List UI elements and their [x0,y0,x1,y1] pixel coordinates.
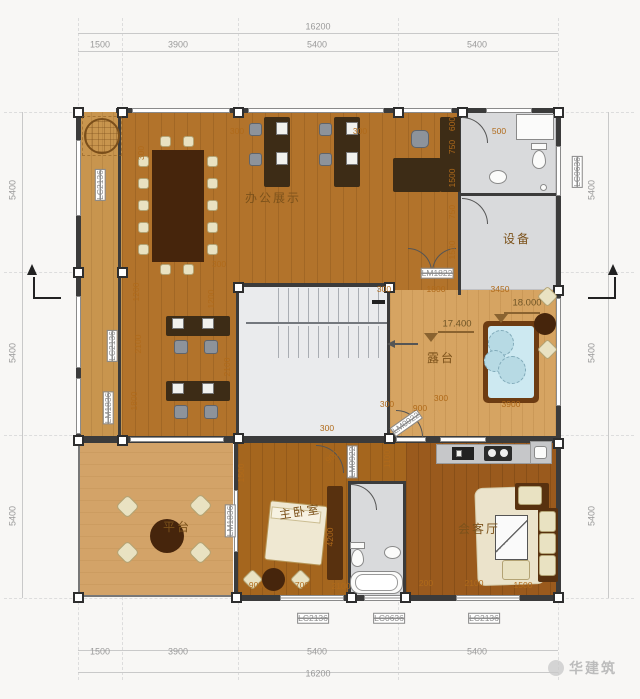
dim-label: 5400 [467,41,487,50]
window-kitchen-wall [440,437,486,442]
section-arrow [608,264,618,275]
office-chair [319,123,332,136]
win-label: LC2136 [297,613,329,624]
round-rug [262,568,285,591]
elevation-line [438,331,474,333]
chair [207,244,218,255]
column [117,435,128,446]
sofa-cushion [502,560,530,580]
wall-stair-right [387,283,390,438]
window-right-LC0636 [556,146,561,196]
column [553,592,564,603]
idim-label: 1100 [383,450,392,468]
wall-stair-top [236,283,390,287]
win-label: LC2136 [468,613,500,624]
window-right-terrace [556,298,561,406]
room-label: 平台 [163,521,191,533]
idim-label: 3450 [491,285,510,294]
section-arrow [27,264,37,275]
win-label: LC0636 [373,613,405,624]
chair [138,244,149,255]
shower [516,114,554,140]
wall-bath-equip-divider [460,193,558,196]
platform-edge-left [78,443,80,597]
idim-label: 300 [434,394,448,403]
idim-label: 1800 [427,285,446,294]
elevation-triangle [494,314,508,323]
burner [500,449,508,457]
monitor [172,383,184,394]
sofa-cushion [539,511,556,532]
column [553,438,564,449]
win-label: LM0922 [347,446,358,479]
balcony-strip-floor [80,112,122,440]
dim-line [22,112,23,598]
idim-label: 1200 [207,290,216,309]
idim-label: 300 [377,285,391,294]
room-label: 会客厅 [458,523,500,535]
floor-drain [540,184,547,191]
window-top-3 [402,108,452,113]
plant [498,356,526,384]
chair [183,264,194,275]
dim-label: 5400 [588,180,597,200]
section-mark [33,297,61,299]
column [233,282,244,293]
sofa-cushion [539,533,556,554]
monitor [202,383,214,394]
chair [138,178,149,189]
window-left-LC2136-2 [76,296,81,368]
dim-label: 5400 [307,41,327,50]
platform-edge-bottom [78,595,235,597]
win-label: LC0636 [572,156,583,188]
chair [207,178,218,189]
idim-label: 1500 [237,464,246,483]
win-label: LC2136 [95,169,106,201]
idim-label: 300 [353,127,367,136]
office-chair [174,405,188,419]
dim-label: 1500 [90,648,110,657]
dim-label: 5400 [9,180,18,200]
chair [183,136,194,147]
window-bottom-LC2136 [280,595,344,601]
dim-label: 5400 [307,648,327,657]
column [73,592,84,603]
dim-line [78,33,558,34]
win-label: LM1822 [421,268,454,279]
wall-stair-left [236,283,239,438]
idim-label: 2100 [465,579,484,588]
conference-table [152,150,204,262]
idim-label: 4200 [326,528,335,547]
idim-label: 600 [448,117,457,131]
office-chair [204,340,218,354]
idim-label: 750 [448,140,457,154]
stair-direction-mark [372,300,385,304]
idim-label: 1500 [514,581,533,590]
dim-label: 5400 [588,506,597,526]
idim-label: 300 [380,400,394,409]
column [233,433,244,444]
stair-flight-upper [278,288,388,323]
platform-floor [80,440,233,597]
dim-line [78,51,558,52]
column [346,592,357,603]
appliance-door [456,450,462,457]
chair [207,156,218,167]
kitchen-sink [534,446,547,459]
door-LM0922-gap [396,437,426,442]
wall-bath2-right [403,481,406,597]
section-mark [33,277,35,299]
idim-label: 2100 [223,358,232,377]
office-chair [249,123,262,136]
dim-line [608,112,609,598]
toilet-bowl [351,549,364,567]
idim-label: 1800 [130,392,139,411]
idim-label: 700 [295,581,309,590]
window-bottom-LC2136-2 [456,595,520,601]
chair [160,136,171,147]
elevation-line [504,312,540,314]
entry-arrow-head [387,340,395,348]
office-chair [249,153,262,166]
sink [384,546,401,559]
idim-label: 900 [413,404,427,413]
room-label: 设备 [503,233,531,245]
sink [489,170,507,184]
window-top-4 [486,108,532,113]
dim-label: 16200 [305,670,330,679]
entry-arrow-shaft [394,343,418,345]
monitor [346,152,358,165]
column [233,107,244,118]
idim-label: 300 [320,424,334,433]
section-mark [588,297,616,299]
window-top-1 [132,108,230,113]
office-chair [174,340,188,354]
terrace-table [534,313,556,335]
win-label: LM1836 [225,505,236,538]
idim-label: 3900 [502,400,521,409]
monitor [276,152,288,165]
window-top-2 [248,108,384,113]
window-left-LC2136 [76,140,81,216]
floor-plan-canvas: 1620015003900540054005400540054005400540… [0,0,640,699]
idim-label: 1200 [132,283,141,302]
column [117,267,128,278]
column [553,107,564,118]
dim-label: 1500 [90,41,110,50]
watermark: 华建筑 [548,658,617,678]
idim-label: 750 [448,205,457,219]
idim-label: 900 [249,581,263,590]
chair [207,200,218,211]
office-chair [204,405,218,419]
dim-label: 5400 [9,343,18,363]
idim-label: 1500 [448,241,457,260]
bathtub-inner [355,574,398,591]
burner [488,449,496,457]
sofa-cushion [539,555,556,576]
dim-label: 5400 [588,343,597,363]
toilet-bowl [532,150,546,169]
column [73,267,84,278]
chair [138,200,149,211]
wall-strip-inner [118,112,121,444]
wall-bath2-top [348,481,406,484]
idim-label: 500 [492,127,506,136]
stair-rail [246,322,388,324]
column [231,592,242,603]
win-label: LM1836 [103,392,114,425]
monitor [202,318,214,329]
idim-label: 300 [230,127,244,136]
elev-label: 18.000 [512,298,541,308]
door-left-LM1836 [76,378,81,434]
room-label: 办公展示 [245,192,301,204]
dim-label: 16200 [305,23,330,32]
elev-label: 17.400 [442,319,471,329]
room-label: 露台 [427,352,455,364]
idim-label: 200 [419,579,433,588]
watermark-text: 华建筑 [569,658,617,678]
toilet-tank [531,143,547,150]
column [400,592,411,603]
column [393,107,404,118]
elevation-triangle [424,333,438,342]
win-label: LC2136 [107,330,118,362]
column [73,435,84,446]
chair [207,222,218,233]
watermark-logo-icon [548,660,564,676]
window-platform-wall [130,437,224,442]
idim-label: 1500 [448,169,457,188]
sofa-cushion [518,486,542,505]
planter-icon [84,118,120,154]
monitor [276,122,288,135]
toilet-tank [350,542,365,549]
dim-label: 5400 [9,506,18,526]
dim-label: 3900 [168,41,188,50]
office-chair [411,130,429,148]
chair [160,264,171,275]
stair-flight-lower [278,326,388,358]
monitor [172,318,184,329]
dim-label: 3900 [168,648,188,657]
reception-desk [393,158,441,192]
office-chair [319,153,332,166]
idim-label: 300 [212,260,226,269]
section-mark [614,277,616,299]
idim-label: 2100 [134,335,143,354]
dim-label: 5400 [467,648,487,657]
idim-label: 2100 [332,582,351,591]
chair [138,222,149,233]
idim-label: 300 [137,146,146,160]
